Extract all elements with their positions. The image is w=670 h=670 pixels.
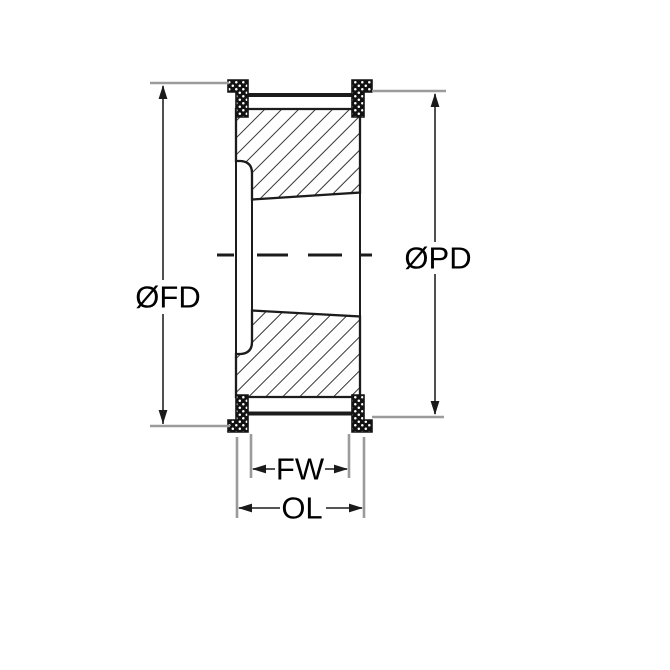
ol-label: OL xyxy=(281,491,322,526)
fd-arrow-down xyxy=(159,410,168,424)
pulley-body xyxy=(217,80,372,432)
fd-label: ØFD xyxy=(135,280,200,315)
upper-web-hatch-section xyxy=(236,109,360,200)
fw-arrow-right xyxy=(334,465,348,474)
dimension-flange-diameter: ØFD xyxy=(135,83,230,426)
ol-arrow-left xyxy=(238,504,252,513)
dimension-face-width: FW xyxy=(251,434,349,487)
fw-arrow-left xyxy=(252,465,266,474)
technical-drawing-canvas: ØFD ØPD FW xyxy=(0,0,670,670)
flange-top-right xyxy=(352,80,372,117)
flange-top-left xyxy=(228,80,248,117)
pulley-section-drawing: ØFD ØPD FW xyxy=(0,0,670,670)
lower-web-hatch-section xyxy=(236,311,360,398)
bush-recess-outline xyxy=(236,161,252,354)
flange-bottom-left xyxy=(228,395,248,432)
pd-label: ØPD xyxy=(404,241,471,276)
flange-bottom-right xyxy=(352,395,372,432)
ol-arrow-right xyxy=(349,504,363,513)
pd-arrow-up xyxy=(431,93,440,107)
pd-arrow-down xyxy=(431,401,440,415)
fd-arrow-up xyxy=(159,85,168,99)
dimension-pitch-diameter: ØPD xyxy=(372,91,472,417)
fw-label: FW xyxy=(276,452,325,487)
